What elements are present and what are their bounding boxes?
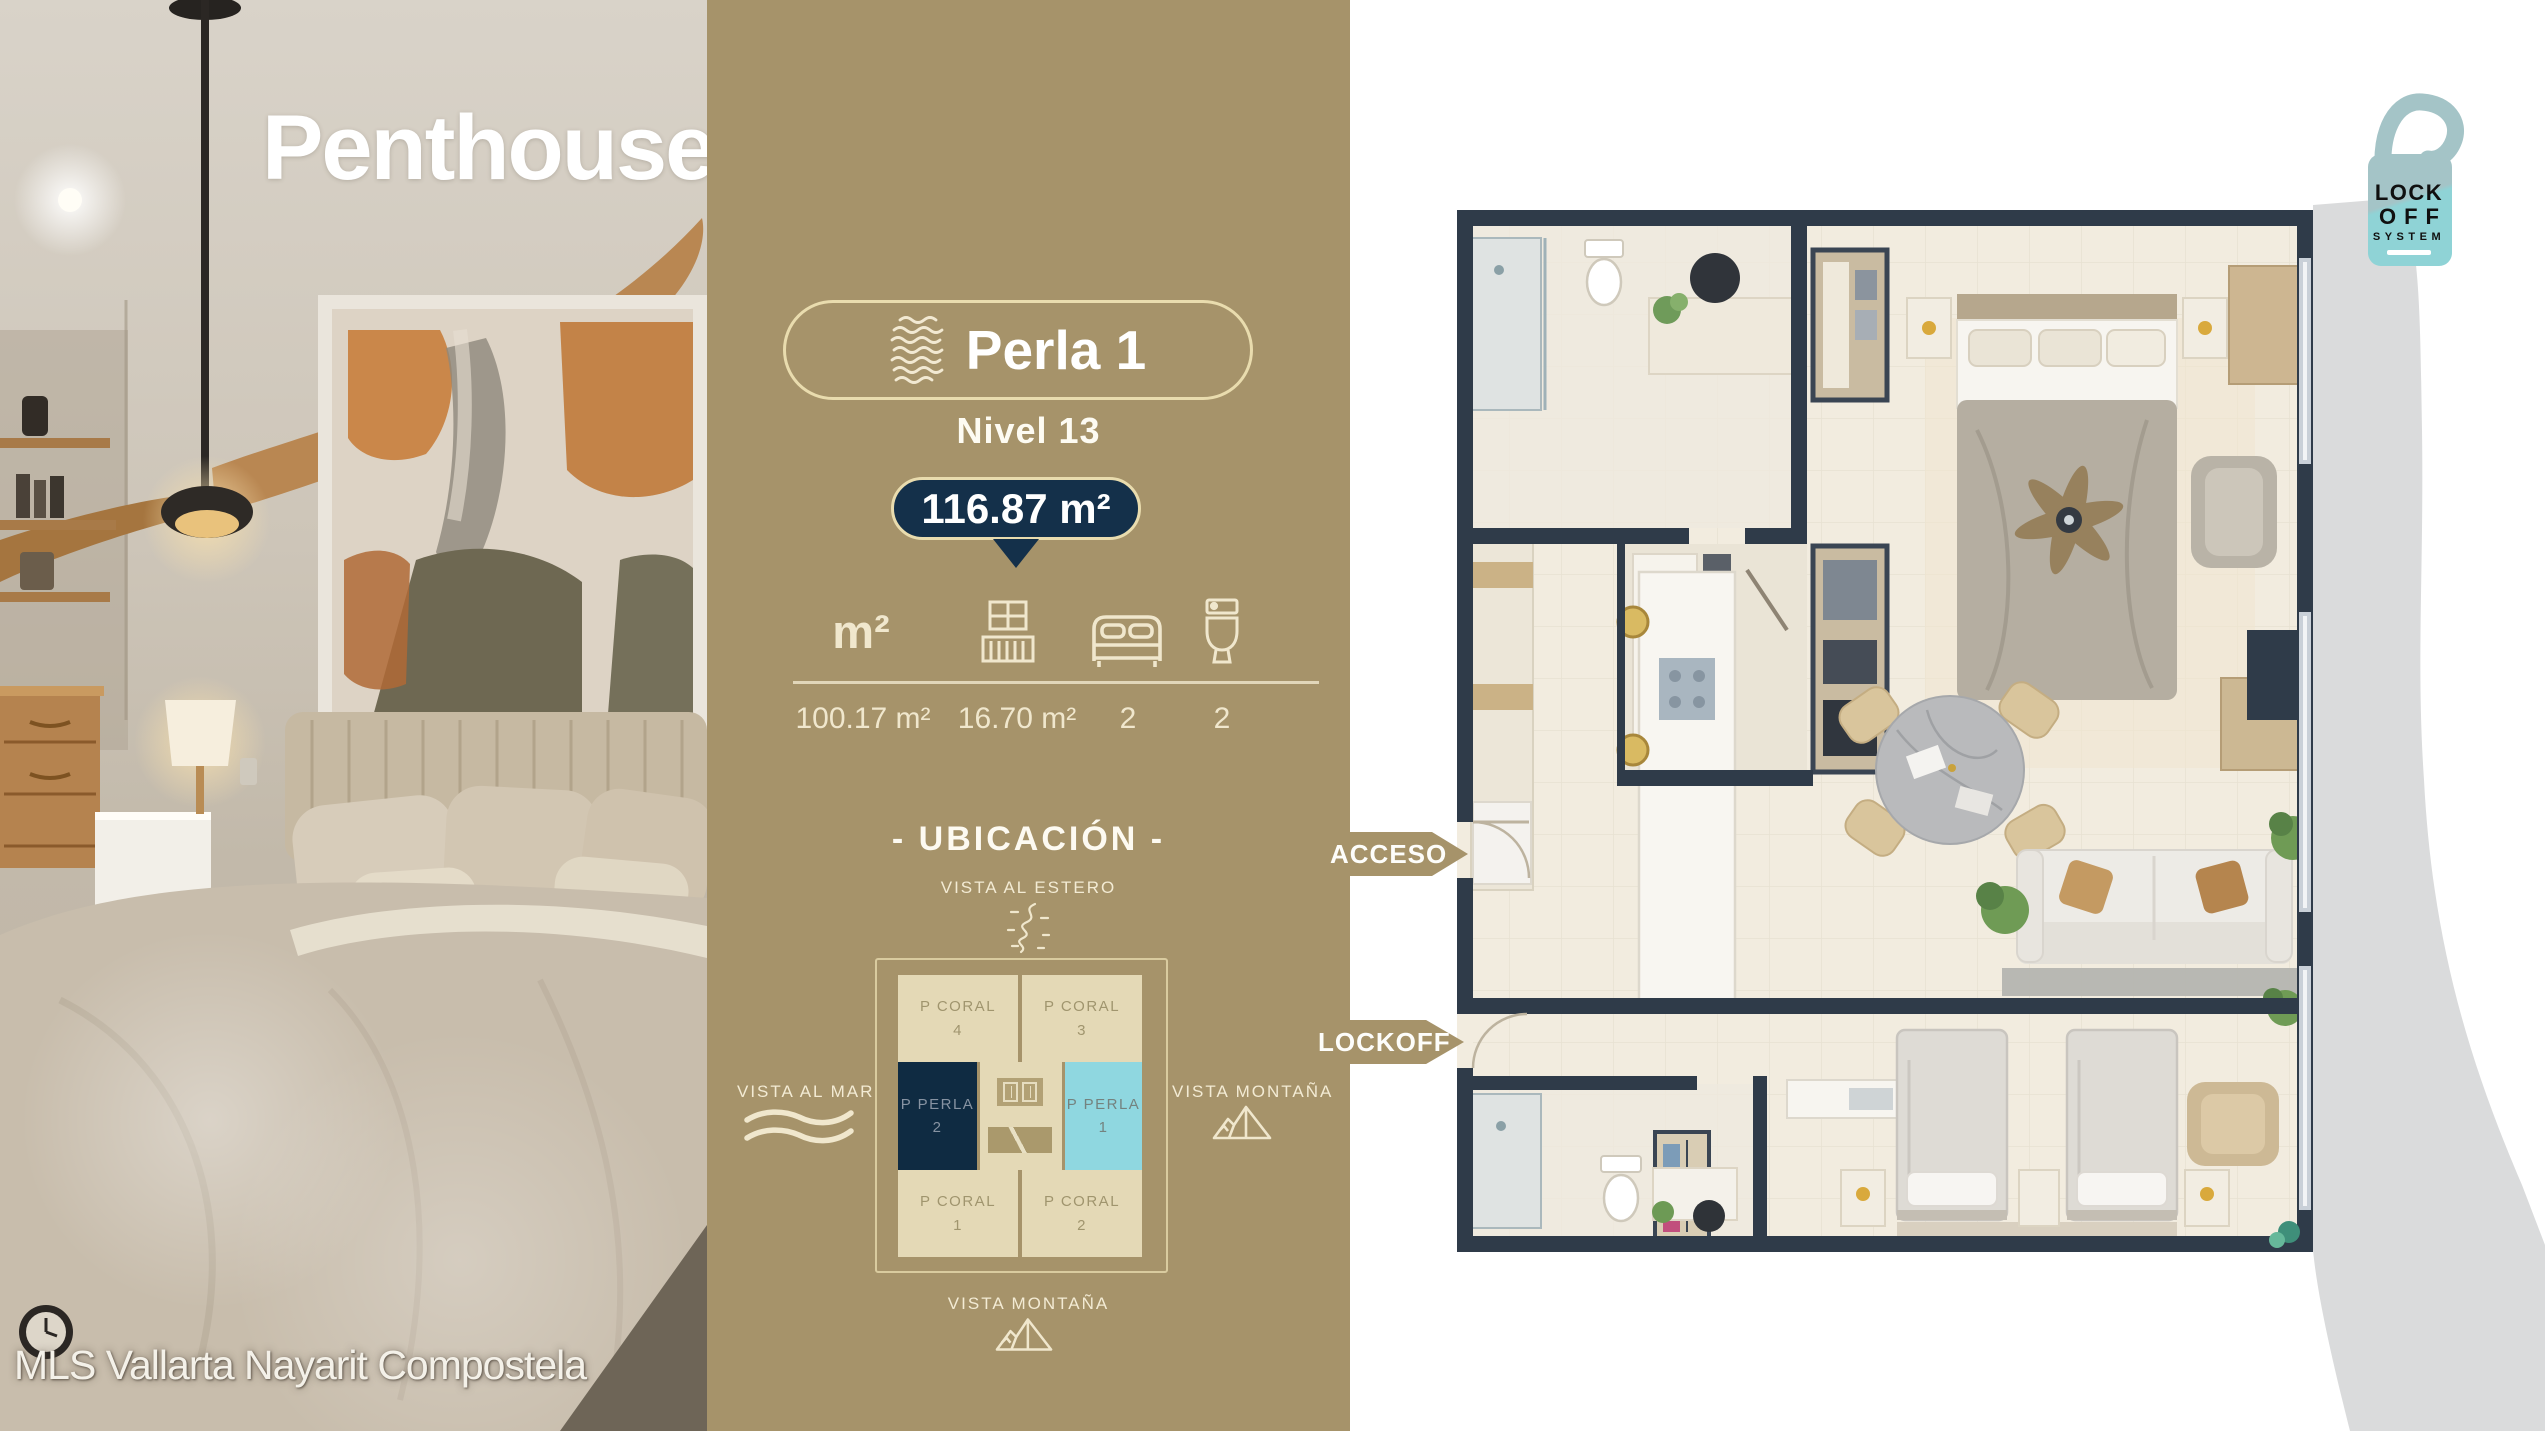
floorplan [1457, 210, 2313, 1252]
badge-pointer [993, 539, 1039, 568]
unit-name-badge: Perla 1 [783, 300, 1253, 400]
grid-cell-coral-1: P CORAL 1 [898, 1170, 1018, 1257]
grid-cell-coral-2: P CORAL 2 [1022, 1170, 1142, 1257]
watermark: MLS Vallarta Nayarit Compostela [14, 1342, 586, 1389]
mountain-icon [995, 1316, 1053, 1352]
stat-area-total: 100.17 m² [795, 702, 930, 736]
area-icon: m² [832, 604, 889, 659]
title-penthouse: Penthouse [262, 96, 714, 201]
vista-montana-right-label: VISTA MONTAÑA [1172, 1082, 1312, 1102]
grid-cell-coral-3: P CORAL 3 [1022, 975, 1142, 1062]
unit-name: Perla 1 [966, 318, 1146, 382]
elevators-icon [997, 1078, 1043, 1106]
stairs-icon [988, 1127, 1052, 1153]
sea-waves-icon [743, 1108, 855, 1148]
toilet-icon [1203, 598, 1241, 666]
unit-level: Nivel 13 [707, 410, 1350, 452]
bedroom-photo-illustration [0, 0, 707, 1431]
badge-line-off: OFF [2346, 204, 2472, 230]
acceso-text: ACCESO [1318, 839, 1447, 870]
divider-line [793, 681, 1319, 684]
grid-cell-coral-4: P CORAL 4 [898, 975, 1018, 1062]
waves-logo-icon [890, 314, 944, 386]
grid-cell-perla-1: P PERLA 1 [1065, 1062, 1142, 1170]
bedroom-photo: MLS Vallarta Nayarit Compostela [0, 0, 707, 1431]
vista-montana-bottom-label: VISTA MONTAÑA [707, 1294, 1350, 1314]
stat-bedrooms: 2 [1120, 702, 1137, 736]
stat-bathrooms: 2 [1214, 702, 1231, 736]
ubicacion-heading: - UBICACIÓN - [707, 820, 1350, 859]
location-grid: P CORAL 4 P CORAL 3 P PERLA 2 P PERLA 1 … [875, 958, 1168, 1273]
total-area-badge: 116.87 m² [891, 477, 1141, 540]
badge-line-system: SYSTEM [2346, 231, 2472, 243]
estuary-icon [1003, 902, 1053, 954]
mountain-icon [1212, 1104, 1272, 1140]
brochure-page: MLS Vallarta Nayarit Compostela Penthous… [0, 0, 2545, 1431]
unit-info-panel: Perla 1 Nivel 13 116.87 m² m² [707, 0, 1350, 1431]
badge-line-lock: LOCK [2346, 180, 2472, 206]
vista-mar-label: VISTA AL MAR [737, 1082, 869, 1102]
balcony-icon [981, 600, 1035, 664]
grid-cell-perla-2: P PERLA 2 [898, 1062, 977, 1170]
badge-underline [2387, 250, 2431, 255]
stat-balcony-area: 16.70 m² [958, 702, 1076, 736]
lockoff-text: LOCKOFF [1306, 1027, 1451, 1058]
vista-estero-label: VISTA AL ESTERO [707, 878, 1350, 898]
total-area-value: 116.87 m² [921, 485, 1110, 533]
lockoff-system-badge: LOCK OFF SYSTEM [2346, 84, 2472, 270]
bed-icon [1090, 612, 1164, 668]
